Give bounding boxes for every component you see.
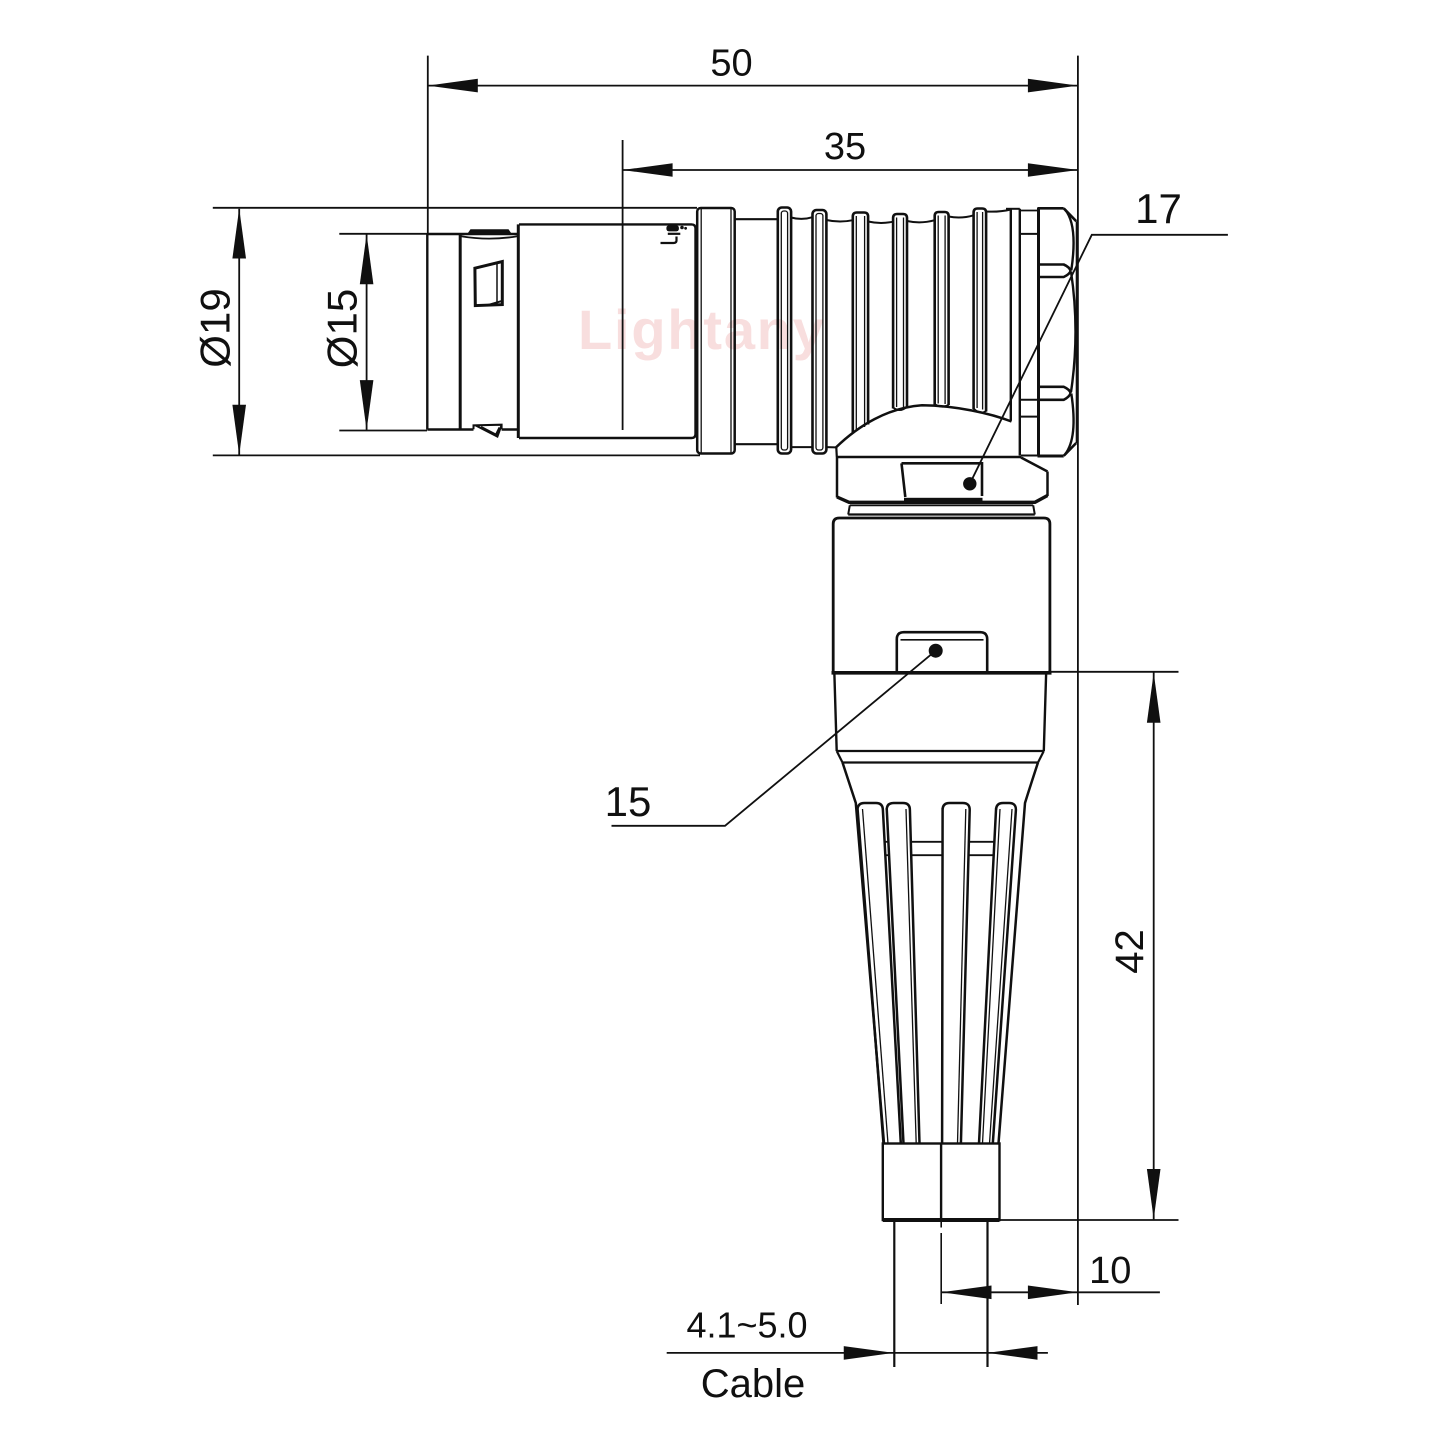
svg-text:4.1~5.0: 4.1~5.0: [686, 1305, 807, 1346]
svg-text:15: 15: [605, 778, 652, 825]
svg-text:Ø15: Ø15: [319, 289, 366, 368]
svg-text:50: 50: [710, 43, 752, 85]
svg-text:10: 10: [1089, 1250, 1131, 1292]
svg-text:35: 35: [824, 126, 866, 168]
svg-text:Cable: Cable: [701, 1362, 806, 1406]
svg-text:Ø19: Ø19: [192, 288, 239, 367]
svg-text:Lightany: Lightany: [578, 298, 826, 361]
svg-text:17: 17: [1135, 185, 1182, 232]
svg-text:42: 42: [1108, 929, 1152, 974]
